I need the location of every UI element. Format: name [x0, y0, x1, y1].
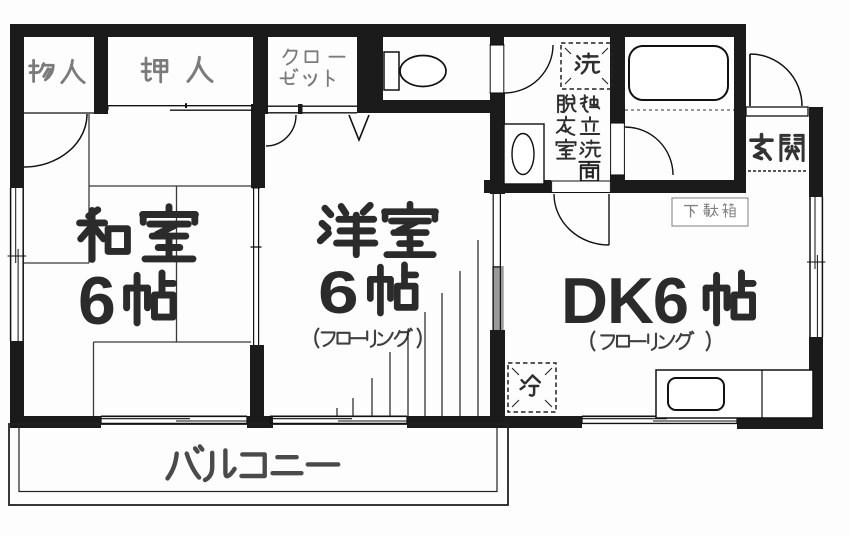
svg-text:6: 6	[318, 259, 359, 326]
svg-text:DK6: DK6	[561, 264, 688, 337]
svg-text:6: 6	[78, 263, 116, 339]
